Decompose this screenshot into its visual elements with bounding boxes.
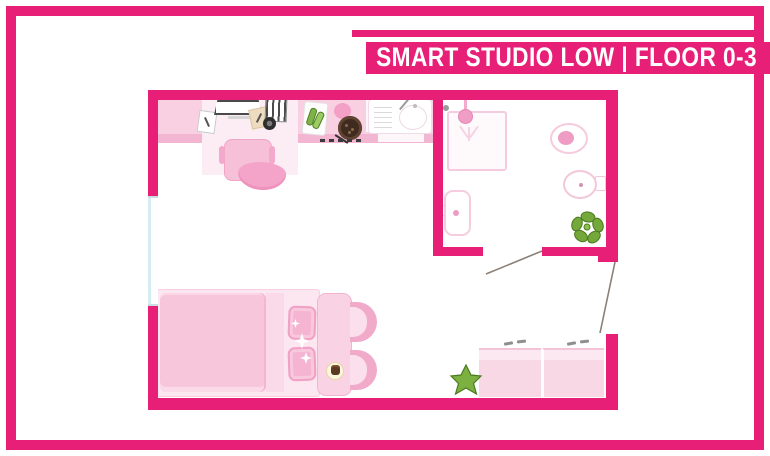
wardrobe-handle bbox=[580, 340, 589, 344]
wardrobe-handle bbox=[517, 340, 526, 344]
plate-icon bbox=[326, 362, 344, 380]
plant-star-icon bbox=[451, 365, 481, 394]
radiator-knob bbox=[453, 210, 459, 216]
toilet-bowl bbox=[558, 131, 574, 145]
half-round-chair bbox=[350, 302, 377, 342]
cupcake-icon bbox=[331, 365, 340, 375]
washbasin-icon bbox=[563, 170, 597, 199]
food-dot bbox=[345, 124, 348, 127]
toilet-icon bbox=[550, 123, 588, 154]
bowl-icon bbox=[263, 117, 276, 130]
plant-clover-icon bbox=[570, 211, 605, 245]
sink-basin bbox=[399, 105, 427, 130]
page-title: SMART STUDIO LOW | FLOOR 0-3 bbox=[366, 42, 757, 73]
chair-armrest bbox=[219, 146, 225, 164]
cutting-board-icon bbox=[302, 101, 329, 136]
shower-tray bbox=[447, 111, 507, 171]
wall-right bbox=[606, 334, 618, 398]
drain-dot bbox=[443, 105, 449, 111]
pillow bbox=[287, 347, 316, 382]
pencil-icon bbox=[256, 113, 262, 123]
wall-right bbox=[606, 90, 618, 247]
wardrobe-unit bbox=[542, 348, 604, 397]
pencil-icon bbox=[204, 117, 210, 127]
wardrobe-handle bbox=[504, 341, 513, 346]
door-jamb bbox=[598, 247, 618, 262]
stove-icon bbox=[320, 139, 364, 142]
drainboard bbox=[374, 107, 392, 128]
wardrobe-top bbox=[479, 350, 541, 360]
wardrobe-handle bbox=[567, 341, 576, 346]
bathroom-wall bbox=[433, 247, 483, 256]
faucet-knob bbox=[413, 104, 417, 108]
entrance-door-leaf bbox=[600, 262, 615, 333]
wall-left bbox=[148, 90, 158, 196]
side-table bbox=[317, 293, 352, 396]
half-round-chair bbox=[350, 350, 377, 390]
accent-line bbox=[352, 30, 764, 37]
food-dot bbox=[351, 128, 354, 131]
office-chair-seat bbox=[237, 161, 286, 191]
wall-bottom bbox=[148, 398, 618, 410]
floor-plan bbox=[148, 90, 618, 410]
shower-spray bbox=[469, 126, 479, 139]
bed-blanket bbox=[160, 293, 266, 392]
frying-pan-icon bbox=[338, 116, 362, 140]
wall-top bbox=[148, 90, 618, 100]
paper-note-icon bbox=[197, 110, 218, 134]
chair-armrest bbox=[269, 146, 275, 164]
floorplan-page: SMART STUDIO LOW | FLOOR 0-3 bbox=[0, 0, 770, 456]
basin-drain bbox=[579, 183, 583, 187]
wardrobe-top bbox=[544, 350, 604, 360]
window bbox=[148, 196, 158, 306]
shower-head-icon bbox=[458, 109, 473, 124]
wardrobe-unit bbox=[479, 348, 541, 397]
bed-fold bbox=[266, 293, 284, 392]
food-dot bbox=[348, 131, 351, 134]
title-banner: SMART STUDIO LOW | FLOOR 0-3 bbox=[366, 42, 770, 74]
wall-left bbox=[148, 305, 158, 398]
kitchen-sink-icon bbox=[368, 99, 432, 134]
monitor-stand bbox=[228, 116, 250, 119]
bathroom-door-leaf bbox=[486, 251, 542, 274]
bathroom-wall bbox=[542, 247, 598, 256]
bathroom-wall bbox=[433, 100, 443, 256]
towel-radiator-icon bbox=[444, 190, 471, 236]
